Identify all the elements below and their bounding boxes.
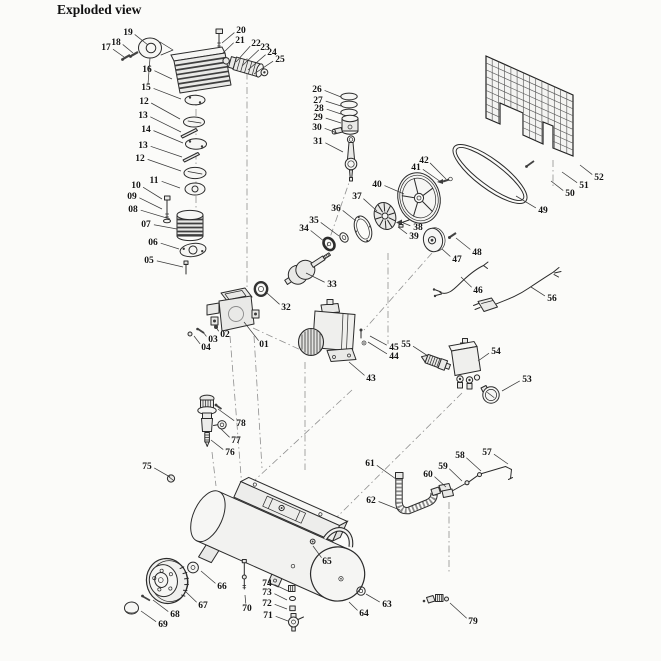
leader-line — [531, 287, 545, 296]
drain-fitting — [423, 595, 449, 604]
part-label-69: 69 — [158, 620, 168, 630]
part-label-35: 35 — [309, 216, 319, 226]
flywheel — [392, 168, 445, 228]
part-label-77: 77 — [231, 436, 241, 446]
part-label-21: 21 — [235, 36, 245, 46]
part-label-13: 13 — [138, 141, 148, 151]
part-label-06: 06 — [148, 238, 158, 248]
piston-pin — [332, 128, 342, 135]
oil-seal — [255, 282, 267, 296]
wheel-washer — [188, 562, 199, 573]
part-label-79: 79 — [468, 617, 478, 627]
leader-line — [450, 603, 467, 618]
motor-bolts — [360, 329, 367, 346]
power-cord — [474, 268, 562, 312]
part-label-61: 61 — [365, 459, 375, 469]
crankcase-bolts — [188, 328, 204, 336]
part-label-49: 49 — [538, 206, 548, 216]
cylinder — [177, 210, 203, 240]
bearing — [321, 236, 336, 252]
leader-line — [349, 362, 365, 375]
part-label-41: 41 — [411, 163, 421, 173]
leader-line — [311, 230, 325, 242]
part-label-01: 01 — [259, 340, 269, 350]
leader-line — [123, 44, 133, 53]
leader-line — [325, 90, 341, 97]
leader-line — [398, 227, 407, 234]
guard-screw — [525, 161, 534, 168]
hub-cap — [125, 602, 139, 614]
leader-line — [139, 198, 162, 209]
leader-line — [366, 594, 380, 602]
leader-line — [370, 336, 387, 345]
leader-line — [377, 465, 396, 479]
connecting-rod — [345, 136, 357, 181]
part-label-53: 53 — [522, 375, 532, 385]
part-label-70: 70 — [242, 604, 252, 614]
part-label-15: 15 — [141, 83, 151, 93]
part-label-07: 07 — [141, 220, 151, 230]
phantom-line — [364, 253, 432, 330]
leader-line — [223, 43, 234, 53]
part-label-76: 76 — [225, 448, 235, 458]
part-label-18: 18 — [111, 38, 121, 48]
leader-line — [211, 440, 223, 450]
part-label-72: 72 — [262, 599, 272, 609]
part-label-56: 56 — [547, 294, 557, 304]
leader-line — [516, 196, 536, 208]
motor — [299, 300, 357, 362]
leader-line — [113, 49, 124, 57]
phantom-line — [254, 336, 262, 468]
leader-line — [154, 468, 170, 477]
part-label-64: 64 — [359, 609, 369, 619]
part-label-32: 32 — [281, 303, 291, 313]
leader-line — [349, 602, 358, 610]
leader-line — [430, 163, 446, 179]
part-label-29: 29 — [313, 113, 323, 123]
leader-line — [153, 131, 183, 143]
part-label-57: 57 — [482, 448, 492, 458]
part-label-59: 59 — [438, 462, 448, 472]
part-label-30: 30 — [312, 123, 322, 133]
leader-line — [220, 428, 230, 437]
safety-valve-assembly — [198, 395, 226, 446]
part-label-66: 66 — [217, 582, 227, 592]
part-label-04: 04 — [201, 343, 211, 353]
part-label-40: 40 — [372, 180, 382, 190]
leader-line — [151, 103, 180, 119]
part-label-75: 75 — [142, 462, 152, 472]
pulley-screw — [448, 233, 456, 239]
part-label-60: 60 — [423, 470, 433, 480]
belt — [445, 135, 534, 212]
pressure-switch — [449, 339, 481, 390]
part-label-48: 48 — [472, 248, 482, 258]
part-label-08: 08 — [128, 205, 138, 215]
leader-line — [327, 109, 341, 114]
part-label-26: 26 — [312, 85, 322, 95]
shaft-washer — [338, 231, 350, 244]
part-label-55: 55 — [401, 340, 411, 350]
part-label-05: 05 — [144, 256, 154, 266]
leader-line — [275, 604, 287, 609]
flywheel-key — [396, 220, 409, 228]
part-label-44: 44 — [389, 352, 399, 362]
part-label-02: 02 — [220, 330, 230, 340]
part-label-12: 12 — [135, 154, 145, 164]
part-label-78: 78 — [236, 419, 246, 429]
part-label-16: 16 — [142, 65, 152, 75]
part-label-19: 19 — [123, 28, 133, 38]
leader-line — [162, 181, 180, 188]
part-label-46: 46 — [473, 286, 483, 296]
leader-line — [326, 101, 341, 106]
part-label-09: 09 — [127, 192, 137, 202]
tank — [178, 463, 383, 623]
leader-line — [150, 117, 181, 132]
leader-line — [363, 199, 377, 211]
check-valve — [420, 352, 452, 372]
piston-rings — [341, 93, 357, 116]
part-label-31: 31 — [313, 137, 323, 147]
part-label-12: 12 — [139, 97, 149, 107]
crankcase-screw — [184, 261, 188, 274]
valve-plate-stack — [181, 95, 207, 195]
part-label-11: 11 — [150, 176, 159, 186]
leader-line — [276, 616, 288, 621]
part-label-36: 36 — [331, 204, 341, 214]
part-label-43: 43 — [366, 374, 376, 384]
discharge-pipe — [439, 467, 513, 498]
part-label-67: 67 — [198, 601, 208, 611]
leader-line — [194, 336, 200, 344]
part-label-10: 10 — [131, 181, 141, 191]
part-label-58: 58 — [455, 451, 465, 461]
leader-line — [413, 346, 428, 356]
part-label-33: 33 — [327, 280, 337, 290]
part-label-50: 50 — [565, 189, 575, 199]
leader-line — [325, 143, 343, 152]
phantom-line — [212, 452, 216, 486]
leader-line — [274, 585, 288, 591]
part-label-51: 51 — [579, 181, 589, 191]
fan — [371, 200, 400, 233]
leader-line — [161, 243, 179, 249]
leader-line — [562, 172, 577, 183]
leader-line — [148, 159, 181, 171]
exploded-view-diagram: Exploded view — [0, 0, 661, 661]
leader-line — [580, 165, 592, 175]
wheel — [143, 555, 192, 607]
leader-line — [143, 187, 162, 199]
part-label-62: 62 — [366, 496, 376, 506]
crankcase — [207, 288, 259, 331]
belt-guard — [486, 56, 573, 156]
leader-line — [456, 238, 470, 250]
part-label-20: 20 — [236, 26, 246, 36]
leader-line — [222, 33, 234, 43]
leader-line — [218, 409, 234, 421]
phantom-line — [230, 336, 242, 488]
part-label-54: 54 — [491, 347, 501, 357]
diagram-canvas: 1918171615121314131211100908070605202122… — [0, 0, 661, 661]
leader-line — [141, 611, 156, 622]
leader-line — [186, 592, 197, 602]
pressure-gauge — [481, 386, 499, 404]
leader-line — [326, 118, 341, 123]
part-label-39: 39 — [409, 232, 419, 242]
leader-line — [151, 146, 182, 157]
leader-line — [442, 249, 450, 257]
leader-line — [449, 469, 462, 481]
leader-line — [245, 595, 246, 604]
leader-line — [154, 71, 172, 79]
leader-line — [478, 353, 489, 361]
pulley — [421, 226, 447, 254]
part-label-52: 52 — [594, 173, 604, 183]
leader-line — [466, 458, 481, 471]
leader-line — [154, 88, 181, 99]
part-label-73: 73 — [262, 588, 272, 598]
leader-line — [154, 225, 177, 229]
part-label-65: 65 — [322, 557, 332, 567]
cylinder-gasket — [179, 242, 207, 258]
leader-line — [141, 210, 170, 219]
leader-line — [321, 222, 339, 236]
leader-line — [502, 381, 520, 391]
part-label-68: 68 — [170, 610, 180, 620]
part-label-17: 17 — [101, 43, 111, 53]
part-label-25: 25 — [275, 55, 285, 65]
leader-line — [343, 210, 356, 221]
flex-hose — [396, 473, 441, 514]
leader-line — [274, 594, 287, 600]
part-label-34: 34 — [299, 224, 309, 234]
leader-line — [203, 332, 206, 336]
leader-line — [157, 261, 183, 267]
part-label-37: 37 — [352, 192, 362, 202]
leader-line — [267, 293, 280, 304]
leader-line — [201, 571, 215, 583]
part-label-74: 74 — [262, 579, 272, 589]
drain-valve-stack — [289, 586, 304, 632]
axle-bolt — [242, 560, 246, 590]
leader-line — [494, 454, 508, 464]
cover-gasket — [350, 213, 375, 244]
part-label-71: 71 — [263, 611, 273, 621]
part-label-45: 45 — [389, 343, 399, 353]
cylinder-head — [171, 47, 231, 93]
part-label-63: 63 — [382, 600, 392, 610]
leader-line — [461, 277, 472, 287]
part-label-13: 13 — [138, 111, 148, 121]
part-label-14: 14 — [141, 125, 151, 135]
wheel-bolt — [141, 595, 150, 601]
piston — [342, 115, 358, 134]
part-label-47: 47 — [452, 255, 462, 265]
